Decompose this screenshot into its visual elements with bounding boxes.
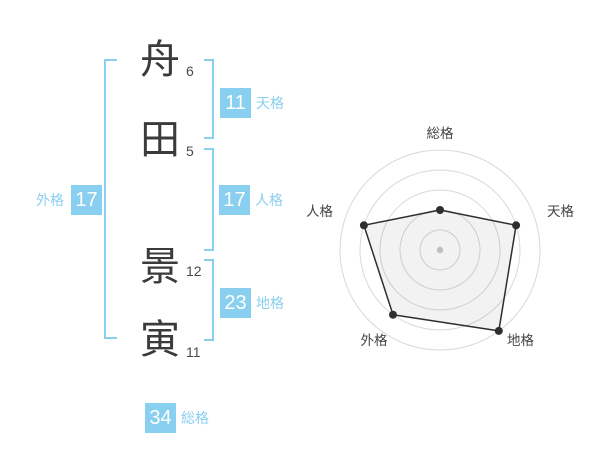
- radar-axis-label: 天格: [547, 204, 575, 219]
- radar-axis-label: 地格: [507, 333, 535, 348]
- name-character-4: 寅: [140, 320, 180, 360]
- radar-axis-label: 外格: [361, 333, 388, 348]
- tenkaku-bracket: [204, 59, 214, 139]
- radar-axis-label: 総格: [427, 126, 454, 141]
- stroke-count-4: 11: [186, 345, 208, 360]
- tenkaku-score-label: 天格: [256, 93, 284, 113]
- chikaku-bracket: [204, 259, 214, 341]
- gaikaku-score-value: 17: [71, 185, 102, 215]
- name-character-1: 舟: [140, 40, 180, 80]
- tenkaku-score-value: 11: [220, 88, 251, 118]
- chikaku-score-label: 地格: [256, 293, 284, 313]
- soukaku-score-value: 34: [145, 403, 176, 433]
- jinkaku-score-value: 17: [219, 185, 250, 215]
- chikaku-score-value: 23: [220, 288, 251, 318]
- radar-chart: 総格天格地格外格人格: [300, 110, 590, 370]
- gaikaku-score-label: 外格: [20, 190, 64, 210]
- radar-center-dot: [437, 247, 443, 253]
- radar-data-polygon: [364, 210, 516, 331]
- radar-data-point: [360, 221, 368, 229]
- radar-data-point: [512, 221, 520, 229]
- seimei-handan-result: 舟 6 田 5 景 12 寅 11 11 天格 17 人格 23 地格 外格 1…: [0, 0, 600, 470]
- jinkaku-bracket: [204, 148, 214, 251]
- radar-axis-label: 人格: [306, 204, 333, 219]
- name-character-3: 景: [140, 247, 180, 287]
- radar-data-point: [495, 327, 503, 335]
- jinkaku-score-label: 人格: [255, 190, 283, 210]
- name-character-2: 田: [140, 120, 180, 160]
- radar-data-point: [389, 311, 397, 319]
- radar-data-point: [436, 206, 444, 214]
- soukaku-score-label: 総格: [181, 408, 209, 428]
- gaikaku-bracket: [104, 59, 117, 339]
